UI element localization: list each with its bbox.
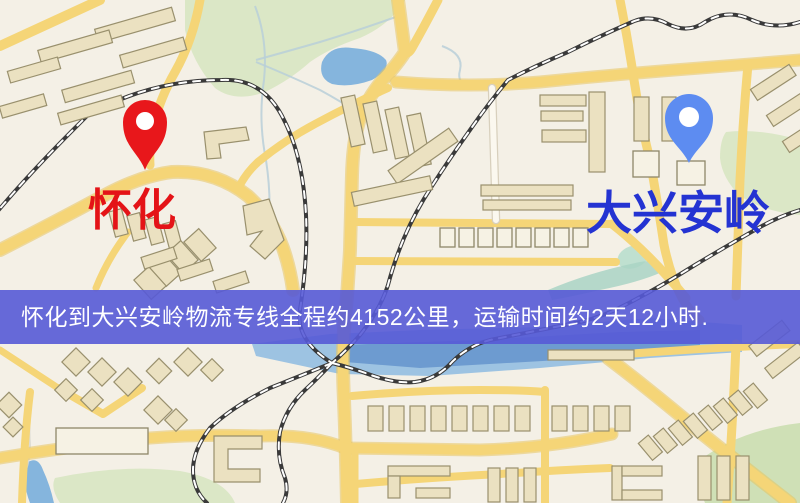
destination-pin-hole	[679, 107, 699, 127]
map-canvas[interactable]	[0, 0, 800, 503]
route-info-banner: 怀化到大兴安岭物流专线全程约4152公里，运输时间约2天12小时.	[0, 290, 800, 344]
map-screenshot: 怀化 大兴安岭 怀化到大兴安岭物流专线全程约4152公里，运输时间约2天12小时…	[0, 0, 800, 503]
origin-pin-hole	[136, 112, 154, 130]
origin-city-label: 怀化	[88, 174, 176, 238]
destination-city-label: 大兴安岭	[586, 177, 770, 243]
route-info-text: 怀化到大兴安岭物流专线全程约4152公里，运输时间约2天12小时.	[21, 304, 708, 330]
